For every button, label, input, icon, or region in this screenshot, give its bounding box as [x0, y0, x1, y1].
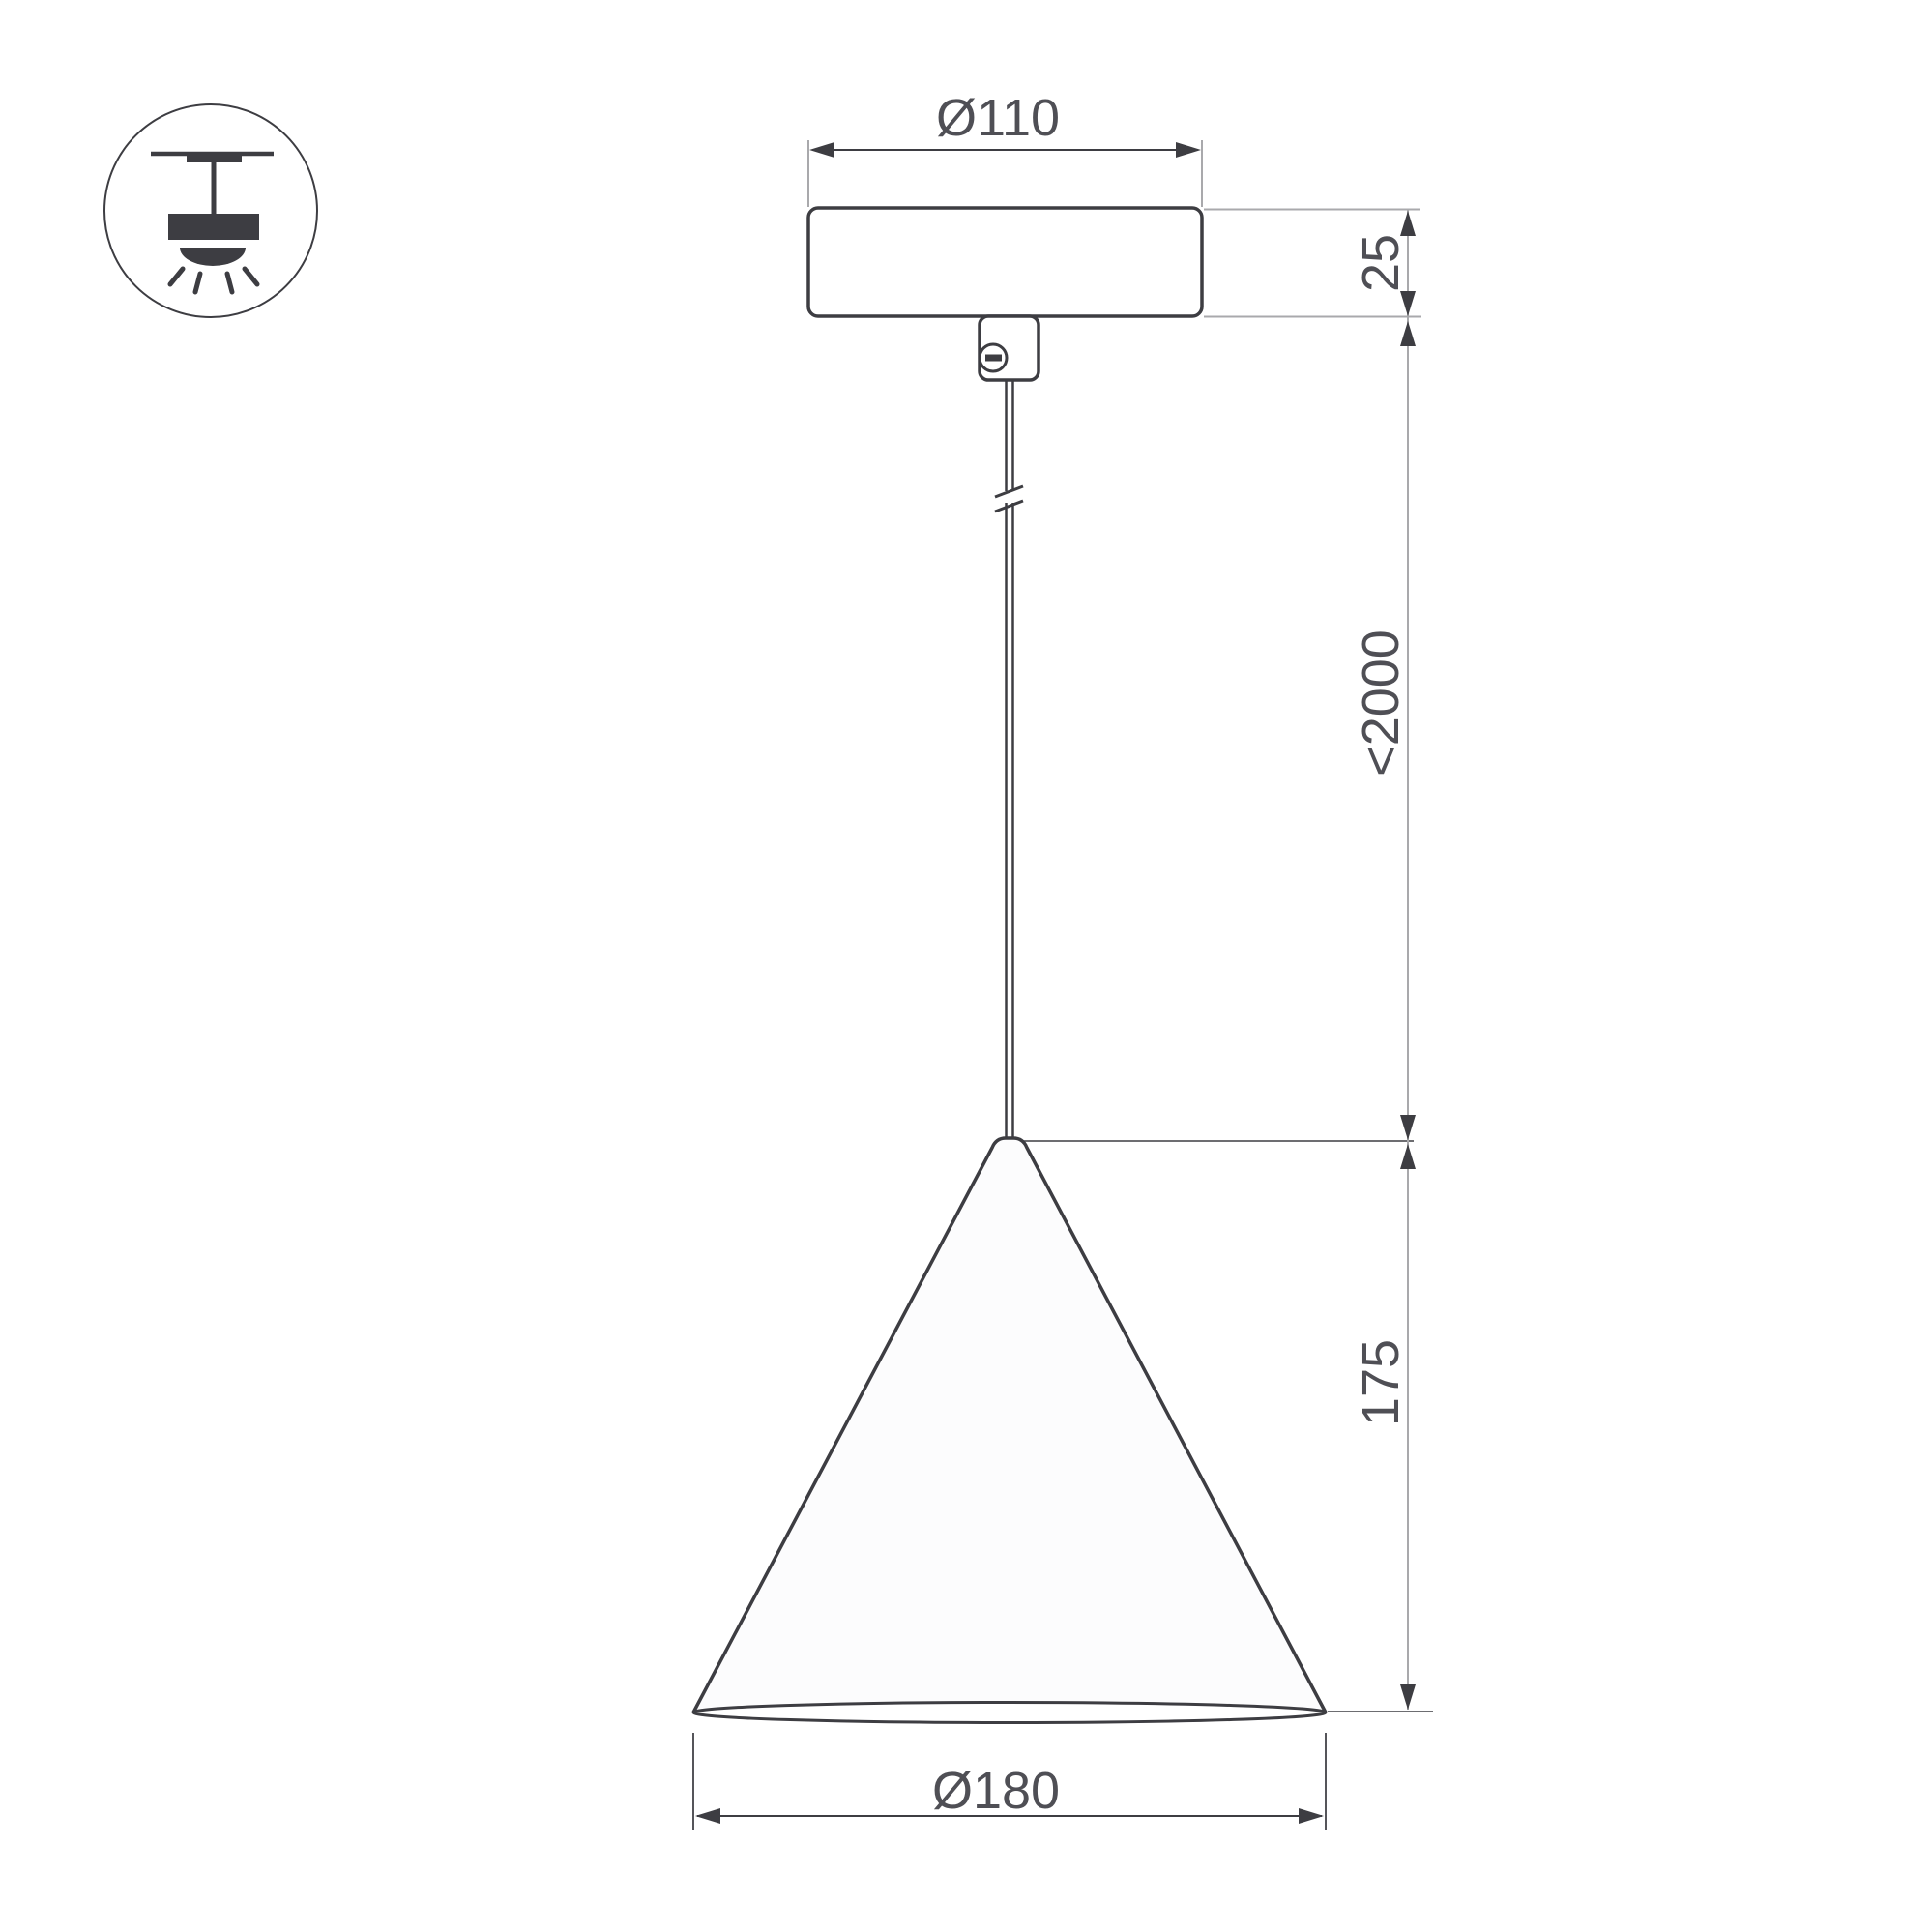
dim-canopy-diameter: Ø110: [808, 89, 1202, 207]
cable-break-icon: [995, 486, 1023, 512]
arrowhead-left: [809, 142, 834, 158]
suspension-cable: [995, 380, 1023, 1139]
light-rays-icon: [170, 269, 257, 292]
lamp-diffuser: [180, 248, 246, 266]
lamp-body: [168, 214, 259, 240]
icon-circle-border: [104, 104, 317, 317]
canopy-height-label: 25: [1352, 234, 1410, 292]
technical-drawing-page: Ø110 25 <2000 175 Ø180: [0, 0, 1932, 1932]
light-ray: [170, 269, 183, 284]
canopy-diameter-label: Ø110: [936, 89, 1060, 147]
shade-rim: [693, 1703, 1326, 1723]
pendant-lamp-dimension-drawing: Ø110 25 <2000 175 Ø180: [0, 0, 1932, 1932]
dim-shade-diameter: Ø180: [693, 1733, 1326, 1830]
shade-height-label: 175: [1352, 1339, 1410, 1426]
arrowhead-down: [1400, 1115, 1416, 1140]
light-ray: [227, 274, 232, 292]
break-tick: [995, 501, 1023, 512]
shade-outline: [693, 1138, 1326, 1712]
light-ray: [245, 269, 257, 284]
arrowhead-down: [1400, 1684, 1416, 1710]
arrowhead-up: [1400, 321, 1416, 346]
arrowhead-left: [695, 1808, 720, 1824]
canopy-body: [808, 208, 1202, 316]
shade-diameter-label: Ø180: [932, 1762, 1060, 1820]
dim-canopy-height: 25: [1352, 211, 1416, 316]
dim-shade-height: 175: [1352, 1144, 1416, 1710]
dim-suspension-length: <2000: [1352, 321, 1416, 1140]
arrowhead-up: [1400, 211, 1416, 236]
suspension-length-label: <2000: [1352, 629, 1410, 776]
arrowhead-right: [1299, 1808, 1324, 1824]
pendant-mount-icon: [104, 104, 317, 317]
cable-gripper: [980, 316, 1039, 380]
light-ray: [195, 274, 200, 292]
arrowhead-down: [1400, 291, 1416, 316]
cone-shade: [693, 1138, 1326, 1723]
ceiling-canopy: [808, 208, 1202, 316]
arrowhead-up: [1400, 1144, 1416, 1169]
arrowhead-right: [1176, 142, 1201, 158]
break-tick: [995, 486, 1023, 497]
